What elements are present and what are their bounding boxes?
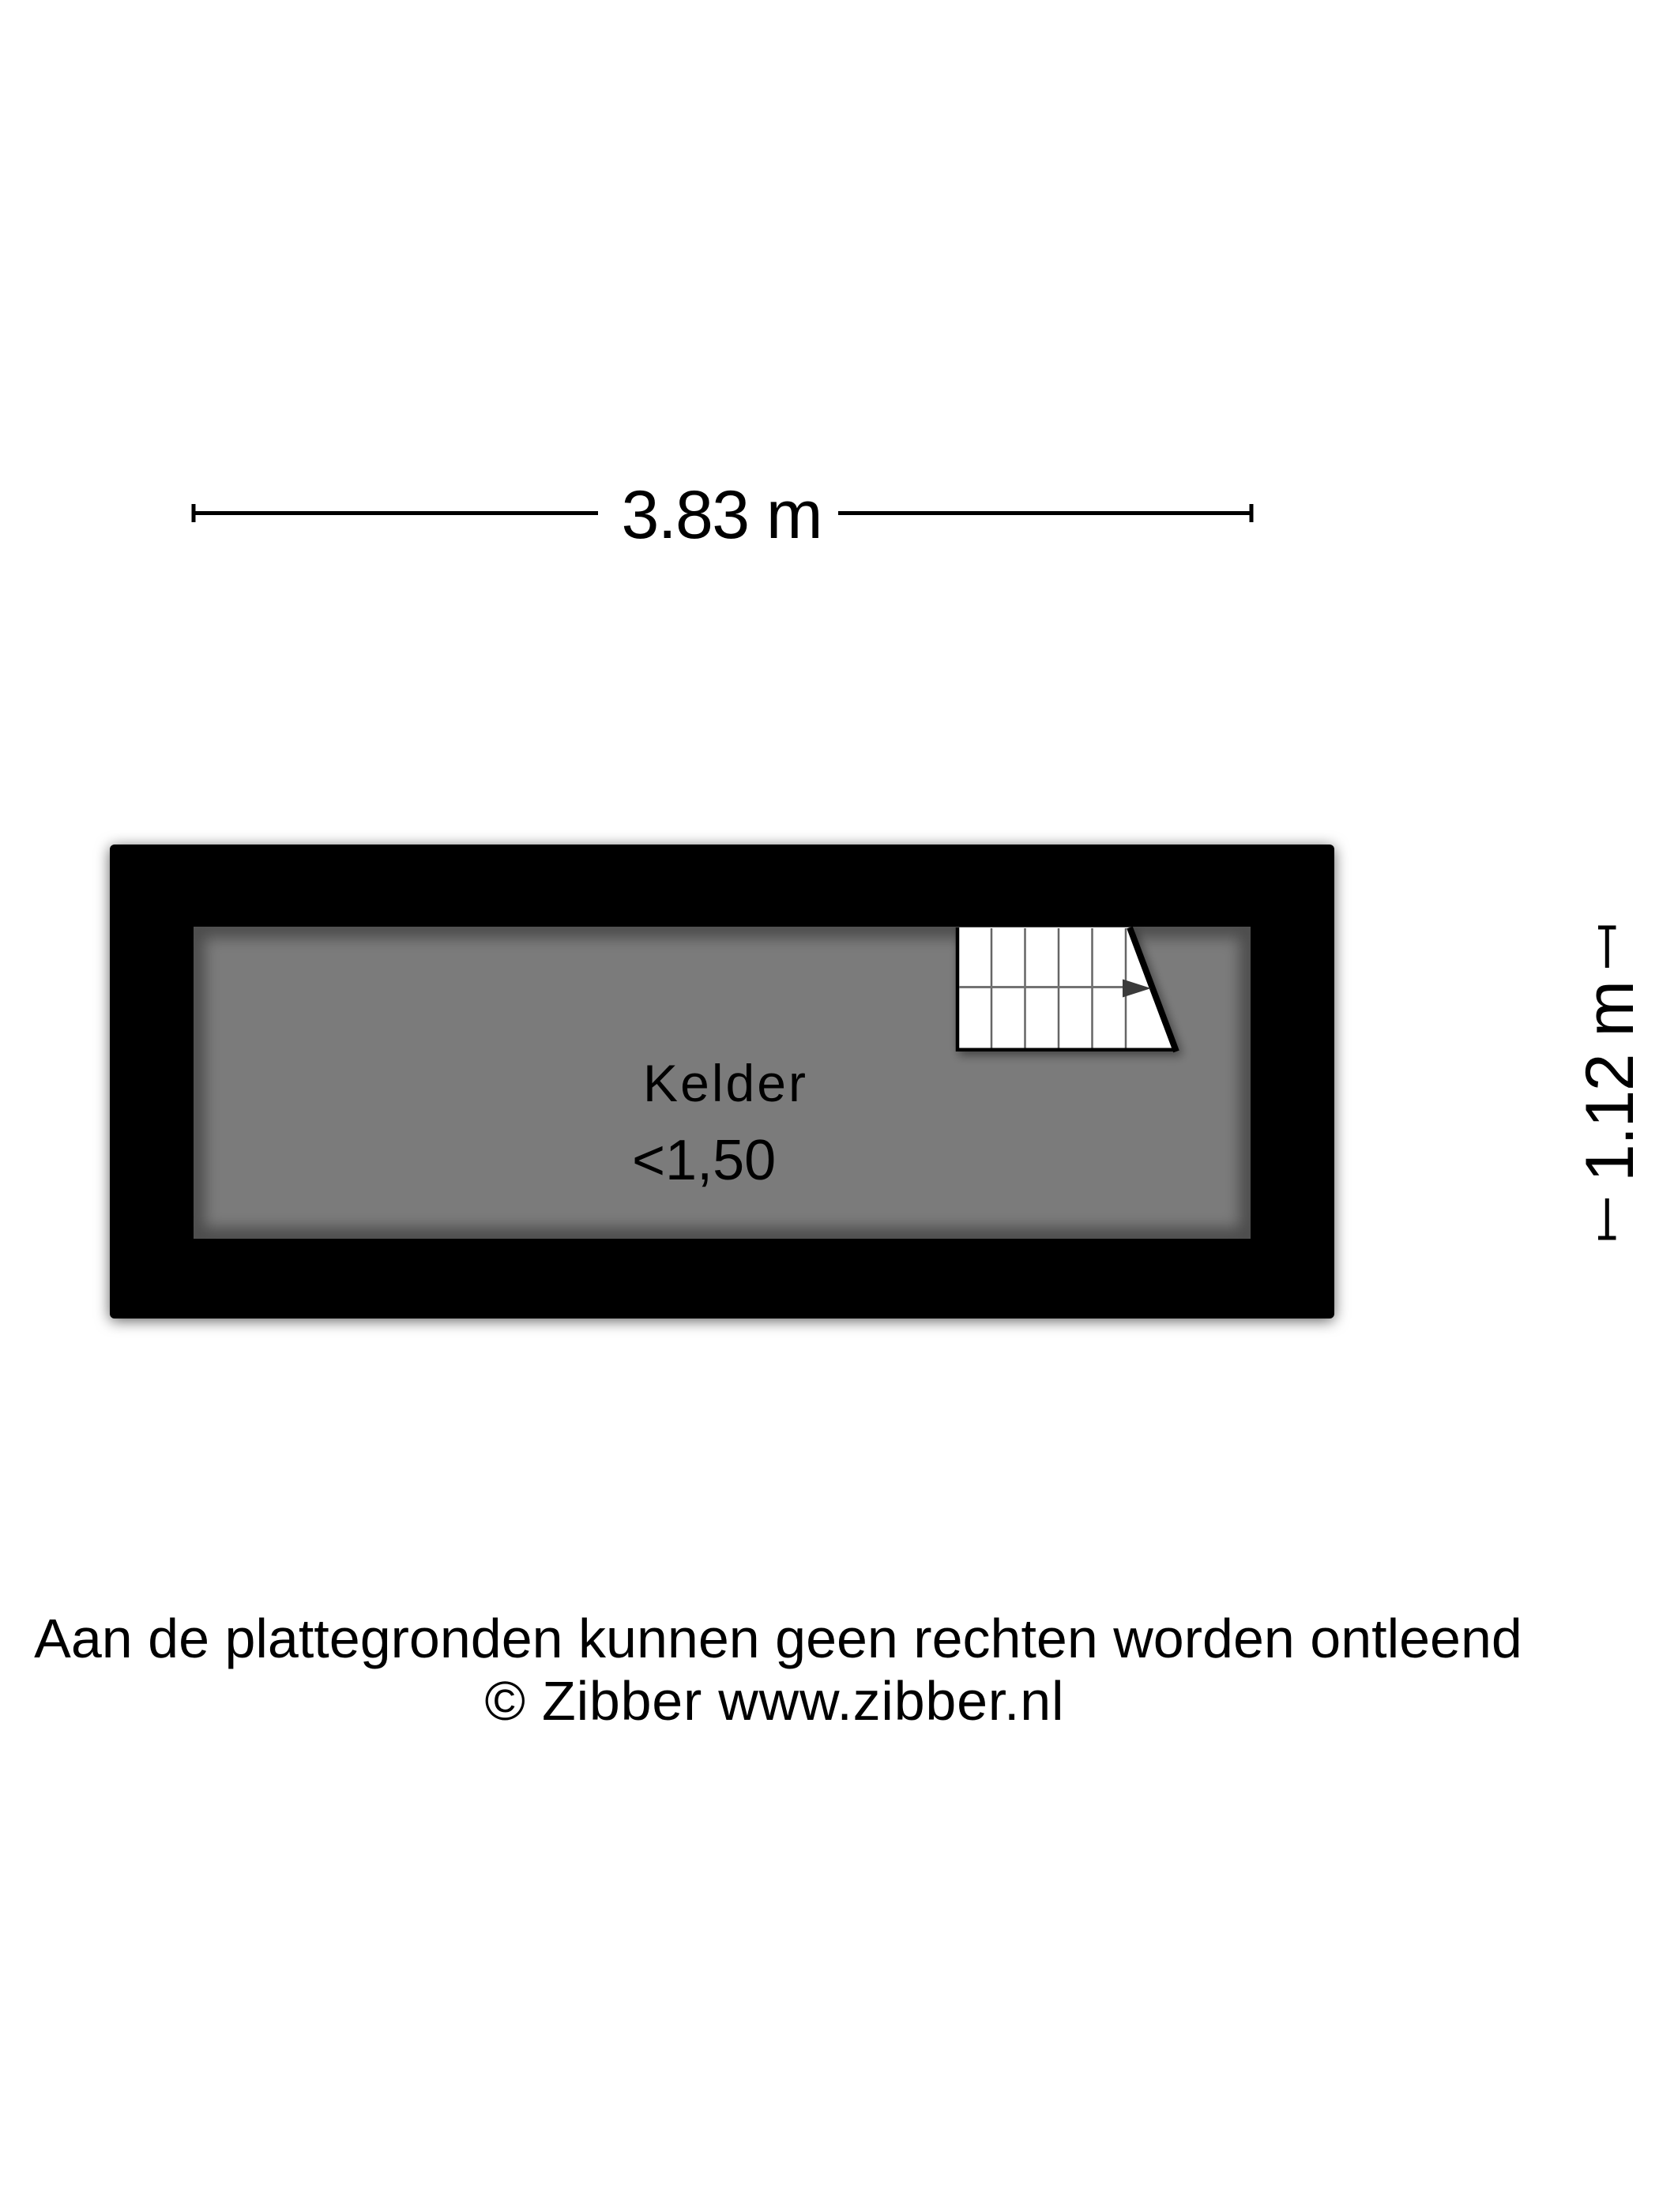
svg-text:<1,50: <1,50 bbox=[632, 1129, 776, 1192]
svg-text:© Zibber www.zibber.nl: © Zibber www.zibber.nl bbox=[485, 1670, 1064, 1732]
svg-text:3.83 m: 3.83 m bbox=[622, 477, 823, 553]
svg-text:Aan de plattegronden kunnen ge: Aan de plattegronden kunnen geen rechten… bbox=[34, 1608, 1522, 1669]
svg-text:1.12 m: 1.12 m bbox=[1572, 980, 1648, 1182]
